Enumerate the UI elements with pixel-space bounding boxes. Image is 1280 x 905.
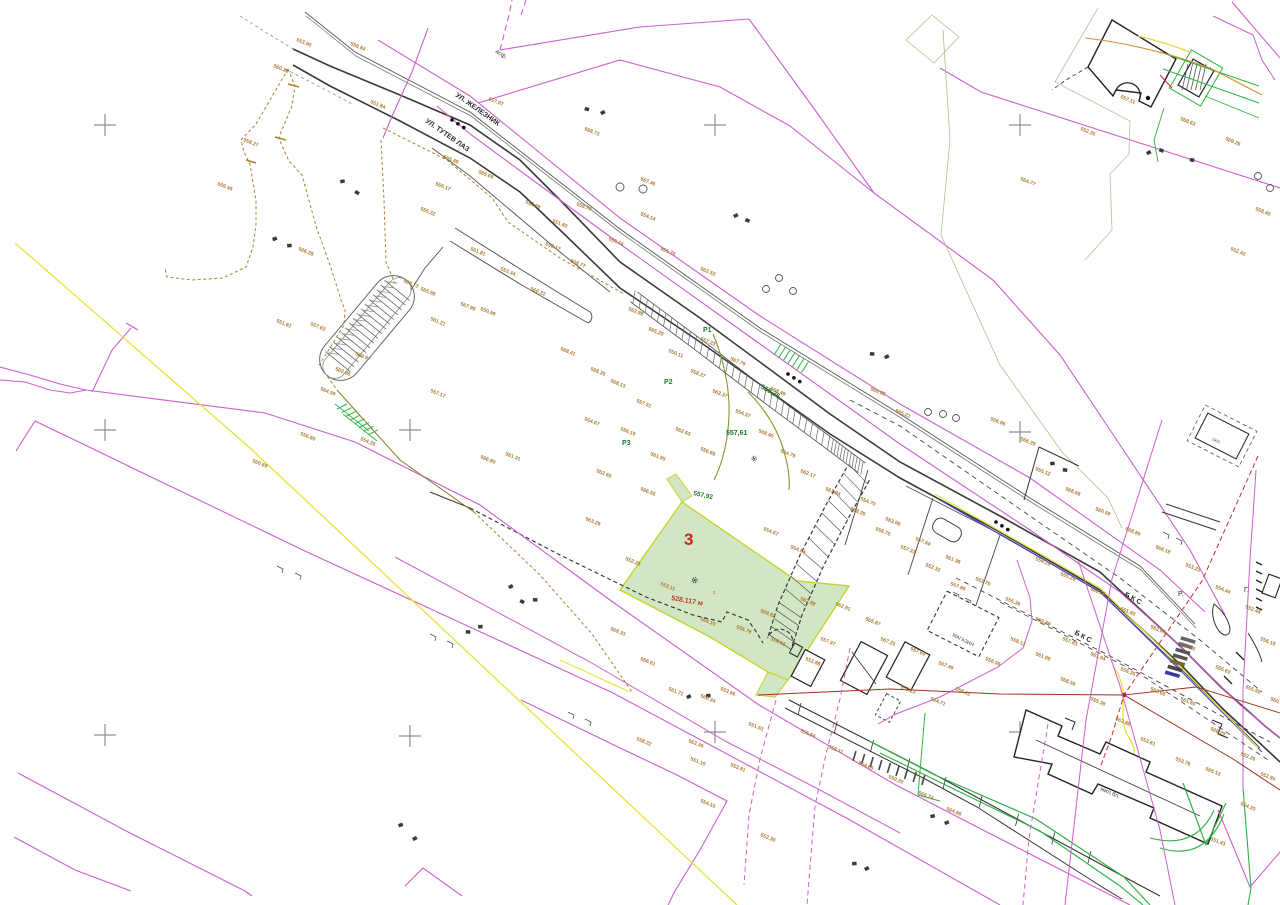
svg-text:P3: P3 <box>622 440 631 447</box>
svg-text:557,61: 557,61 <box>726 430 748 437</box>
svg-text:P2: P2 <box>664 379 673 386</box>
svg-text:3: 3 <box>684 530 693 549</box>
svg-text:Г.: Г. <box>1244 587 1249 594</box>
svg-text:Р.: Р. <box>1178 591 1183 598</box>
svg-text:P1: P1 <box>703 327 712 334</box>
